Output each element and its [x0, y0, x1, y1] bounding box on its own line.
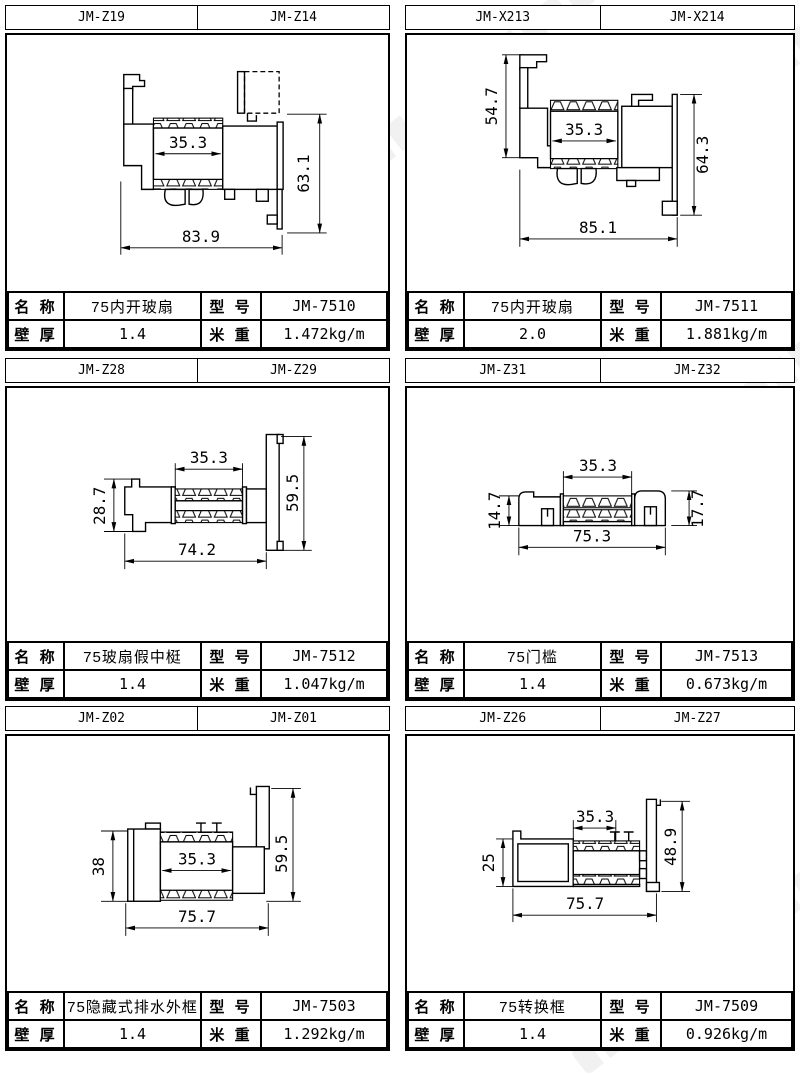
dimension-label: 38 [89, 857, 108, 876]
card-body: 35.3 25 48.9 75.7 名 称 [405, 734, 795, 1051]
card-body: 38 59.5 75.7 35.3 名 称 75隐藏式排水外框 [5, 734, 390, 1051]
name-label: 名 称 [408, 292, 464, 320]
dimension-label: 85.1 [579, 218, 617, 237]
model-number: JM-7510 [261, 292, 387, 320]
profile-name: 75转换框 [464, 992, 601, 1020]
profile-card-3: JM-Z28 JM-Z29 [5, 358, 390, 701]
thickness-label: 壁 厚 [8, 320, 64, 348]
dimension-label: 59.5 [272, 835, 291, 873]
spec-table: 名 称 75玻扇假中梃 型 号 JM-7512 壁 厚 1.4 米 重 1.04… [7, 641, 388, 699]
spec-table: 名 称 75隐藏式排水外框 型 号 JM-7503 壁 厚 1.4 米 重 1.… [7, 991, 388, 1049]
part-code: JM-Z02 [6, 707, 198, 730]
thickness-value: 1.4 [464, 1020, 601, 1048]
thickness-value: 1.4 [64, 320, 201, 348]
dimension-label: 83.9 [182, 227, 220, 246]
model-label: 型 号 [601, 642, 661, 670]
part-code-header: JM-Z28 JM-Z29 [5, 358, 390, 383]
dimension-label: 35.3 [576, 807, 614, 826]
catalog-page: { "colors": { "background": "#ffffff", "… [0, 0, 800, 1053]
part-code: JM-Z29 [198, 359, 389, 382]
thickness-label: 壁 厚 [8, 1020, 64, 1048]
card-body: 63.1 83.9 35.3 名 称 75内开玻扇 型 号 JM-7510 壁 … [5, 33, 390, 351]
dimension-label: 35.3 [579, 456, 617, 475]
model-label: 型 号 [201, 992, 261, 1020]
dimension-label: 35.3 [565, 120, 603, 139]
weight-value: 0.926kg/m [661, 1020, 792, 1048]
spec-table: 名 称 75内开玻扇 型 号 JM-7510 壁 厚 1.4 米 重 1.472… [7, 291, 388, 349]
card-body: 35.3 28.7 59.5 74.2 名 称 [5, 386, 390, 701]
model-label: 型 号 [601, 292, 661, 320]
part-code-header: JM-Z02 JM-Z01 [5, 706, 390, 731]
model-number: JM-7512 [261, 642, 387, 670]
dimension-label: 75.3 [573, 526, 611, 545]
name-label: 名 称 [408, 642, 464, 670]
profile-shape [519, 491, 665, 526]
part-code: JM-Z26 [406, 707, 601, 730]
dimension-label: 75.7 [566, 894, 604, 913]
model-label: 型 号 [201, 642, 261, 670]
dimension-label: 28.7 [90, 487, 109, 525]
weight-value: 1.472kg/m [261, 320, 387, 348]
name-label: 名 称 [8, 992, 64, 1020]
cross-section-drawing: 35.3 28.7 59.5 74.2 [7, 388, 388, 641]
profile-name: 75内开玻扇 [64, 292, 201, 320]
part-code-header: JM-X213 JM-X214 [405, 5, 795, 30]
thickness-value: 1.4 [464, 670, 601, 698]
weight-label: 米 重 [201, 320, 261, 348]
dimension-label: 75.7 [178, 907, 216, 926]
model-number: JM-7513 [661, 642, 792, 670]
profile-name: 75玻扇假中梃 [64, 642, 201, 670]
weight-value: 1.047kg/m [261, 670, 387, 698]
weight-label: 米 重 [601, 670, 661, 698]
dimension-label: 25 [479, 853, 498, 872]
weight-label: 米 重 [201, 670, 261, 698]
name-label: 名 称 [8, 292, 64, 320]
spec-table: 名 称 75内开玻扇 型 号 JM-7511 壁 厚 2.0 米 重 1.881… [407, 291, 793, 349]
cross-section-drawing: 38 59.5 75.7 35.3 [7, 736, 388, 991]
dimension-label: 63.1 [294, 154, 313, 192]
dimension-label: 35.3 [169, 133, 207, 152]
cross-section-drawing: 35.3 14.7 17.7 75.3 [407, 388, 793, 641]
weight-label: 米 重 [601, 320, 661, 348]
dimension-label: 74.2 [178, 540, 216, 559]
part-code: JM-Z28 [6, 359, 198, 382]
model-label: 型 号 [201, 292, 261, 320]
cross-section-drawing: 35.3 25 48.9 75.7 [407, 736, 793, 991]
part-code: JM-X213 [406, 6, 601, 29]
profile-name: 75内开玻扇 [464, 292, 601, 320]
thickness-label: 壁 厚 [408, 1020, 464, 1048]
part-code: JM-Z01 [198, 707, 389, 730]
dimension-label: 35.3 [190, 448, 228, 467]
weight-value: 1.292kg/m [261, 1020, 387, 1048]
profile-card-6: JM-Z26 JM-Z27 [405, 706, 795, 1051]
profile-name: 75隐藏式排水外框 [64, 992, 201, 1020]
part-code: JM-Z27 [601, 707, 795, 730]
part-code-header: JM-Z19 JM-Z14 [5, 5, 390, 30]
thickness-label: 壁 厚 [408, 670, 464, 698]
spec-table: 名 称 75门槛 型 号 JM-7513 壁 厚 1.4 米 重 0.673kg… [407, 641, 793, 699]
profile-shape [128, 786, 270, 901]
model-number: JM-7511 [661, 292, 792, 320]
weight-value: 0.673kg/m [661, 670, 792, 698]
dimension-label: 17.7 [688, 490, 707, 528]
thickness-value: 2.0 [464, 320, 601, 348]
profile-card-1: JM-Z19 JM-Z14 [5, 5, 390, 351]
thickness-value: 1.4 [64, 1020, 201, 1048]
model-number: JM-7503 [261, 992, 387, 1020]
part-code-header: JM-Z31 JM-Z32 [405, 358, 795, 383]
dimension-label: 59.5 [283, 474, 302, 512]
model-number: JM-7509 [661, 992, 792, 1020]
part-code: JM-Z14 [198, 6, 389, 29]
profile-card-2: JM-X213 JM-X214 [405, 5, 795, 351]
cross-section-drawing: 54.7 64.3 85.1 35.3 [407, 35, 793, 291]
profile-card-4: JM-Z31 JM-Z32 [405, 358, 795, 701]
part-code: JM-Z19 [6, 6, 198, 29]
model-label: 型 号 [601, 992, 661, 1020]
dimension-label: 54.7 [482, 87, 501, 125]
name-label: 名 称 [8, 642, 64, 670]
profile-card-5: JM-Z02 JM-Z01 [5, 706, 390, 1051]
thickness-value: 1.4 [64, 670, 201, 698]
spec-table: 名 称 75转换框 型 号 JM-7509 壁 厚 1.4 米 重 0.926k… [407, 991, 793, 1049]
profile-name: 75门槛 [464, 642, 601, 670]
cross-section-drawing: 63.1 83.9 35.3 [7, 35, 388, 291]
part-code: JM-Z32 [601, 359, 795, 382]
part-code-header: JM-Z26 JM-Z27 [405, 706, 795, 731]
thickness-label: 壁 厚 [408, 320, 464, 348]
card-body: 35.3 14.7 17.7 75.3 名 称 [405, 386, 795, 701]
dimension-label: 14.7 [485, 492, 504, 530]
thickness-label: 壁 厚 [8, 670, 64, 698]
weight-label: 米 重 [201, 1020, 261, 1048]
dimension-label: 64.3 [693, 136, 712, 174]
dimension-label: 35.3 [178, 850, 216, 869]
dimension-label: 48.9 [661, 828, 680, 866]
weight-value: 1.881kg/m [661, 320, 792, 348]
weight-label: 米 重 [601, 1020, 661, 1048]
card-body: 54.7 64.3 85.1 35.3 名 称 75内开玻扇 [405, 33, 795, 351]
name-label: 名 称 [408, 992, 464, 1020]
part-code: JM-X214 [601, 6, 795, 29]
part-code: JM-Z31 [406, 359, 601, 382]
